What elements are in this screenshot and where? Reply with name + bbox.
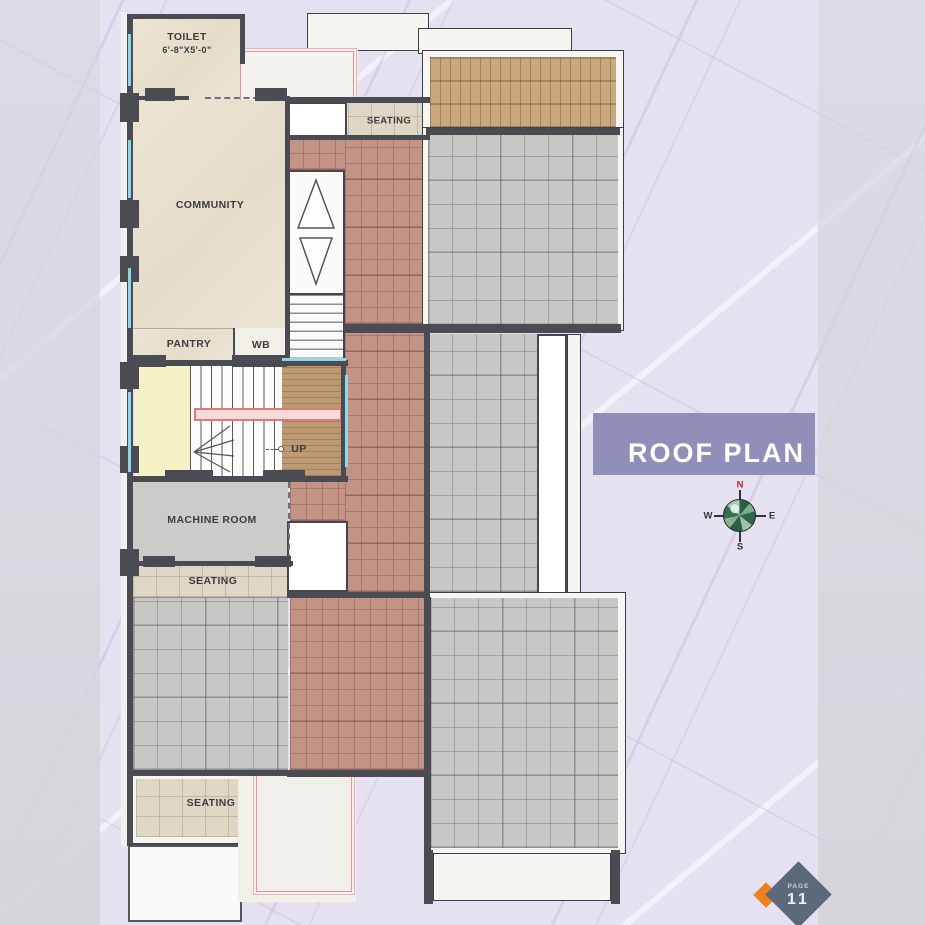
terrace-outline-bottom (256, 776, 352, 892)
planter-mid (292, 526, 344, 588)
wall-row-top (287, 97, 430, 103)
up-label: UP (291, 443, 306, 455)
compass-north-label: N (737, 480, 744, 491)
compass-east-label: E (769, 511, 775, 522)
roof-tiles-bottom-right (430, 598, 618, 848)
wall-midright-left (424, 333, 430, 593)
up-marker-dot (278, 446, 284, 452)
column-block (120, 549, 139, 576)
wall-terrace-top (287, 592, 430, 598)
roof-tiles-mid-right (428, 334, 538, 592)
planter-bottom (134, 851, 236, 916)
seating-middle-label: SEATING (189, 575, 238, 587)
compass: N W E S (700, 478, 780, 554)
stair-landing (135, 366, 190, 476)
planter-top (291, 106, 343, 134)
background-left-band (0, 0, 100, 925)
stair-ramp (287, 295, 345, 361)
window-line (128, 140, 131, 198)
toilet-size-label: 6'-8"X5'-0" (162, 45, 211, 55)
parapet-right-of-strip (567, 334, 581, 595)
wall-cross-mid (345, 324, 621, 333)
column-block (255, 556, 291, 567)
roof-plan-page: TOILET 6'-8"X5'-0" COMMUNITY PANTRY WB U… (0, 0, 925, 925)
window-line (128, 392, 131, 472)
window-line (128, 268, 131, 328)
walkway-upper (345, 140, 428, 324)
column-block (143, 556, 175, 567)
seating-bottom-label: SEATING (187, 797, 236, 809)
column-block (145, 88, 175, 101)
background-right-band (818, 0, 925, 925)
room-community (133, 100, 285, 330)
wall-pergola-bottom (426, 128, 620, 135)
wood-deck (282, 366, 344, 476)
wall-parapet-right-post (611, 850, 620, 904)
stair-break-line (190, 418, 250, 478)
page-number: 11 (775, 891, 822, 909)
window-line (282, 358, 346, 361)
walkway-lower (345, 333, 428, 592)
community-label: COMMUNITY (176, 199, 244, 211)
compass-globe-icon (723, 499, 756, 532)
pergola (430, 57, 616, 128)
elevator-arrows (292, 176, 340, 289)
machine-room-label: MACHINE ROOM (167, 514, 256, 526)
wall-parapet-left-post (424, 850, 433, 904)
column-block (263, 470, 305, 482)
column-block (255, 88, 287, 101)
seating-top-label: SEATING (367, 116, 411, 127)
wall-row-bottom (287, 135, 430, 140)
toilet-label: TOILET (167, 31, 207, 43)
planter-strip-right (541, 338, 563, 591)
walkway-by-machine (290, 482, 345, 521)
column-block (232, 355, 287, 367)
column-block (165, 470, 213, 482)
wall-toilet-top (127, 14, 245, 19)
parapet-bottom-right (433, 853, 611, 901)
column-block (120, 200, 139, 228)
wall-toilet-right (240, 14, 245, 64)
up-marker-line (266, 449, 278, 450)
page-marker: PAGE 11 (765, 861, 831, 925)
parapet-top-middle (307, 13, 429, 51)
roof-tiles-top-right (428, 135, 618, 325)
compass-west-label: W (704, 511, 713, 522)
wb-label: WB (252, 339, 270, 351)
roof-tiles-left (133, 598, 288, 770)
column-block (128, 355, 166, 367)
compass-south-label: S (737, 542, 743, 553)
window-line (345, 375, 348, 467)
wall-gray-left-bottom (127, 770, 291, 776)
walkway-top (287, 140, 345, 170)
wall-bottomright-left (424, 597, 431, 853)
page-word-label: PAGE (775, 883, 822, 890)
column-block (120, 93, 139, 122)
page-title: ROOF PLAN (628, 438, 805, 469)
wall-terrace-bottom (287, 770, 430, 777)
pantry-label: PANTRY (167, 338, 211, 350)
wall-dashed-machine-right (288, 482, 290, 560)
title-banner: ROOF PLAN (593, 413, 815, 475)
window-line (128, 34, 131, 86)
terrace-terracotta-bottom (290, 597, 428, 770)
wall-stair-bottom (127, 476, 348, 482)
